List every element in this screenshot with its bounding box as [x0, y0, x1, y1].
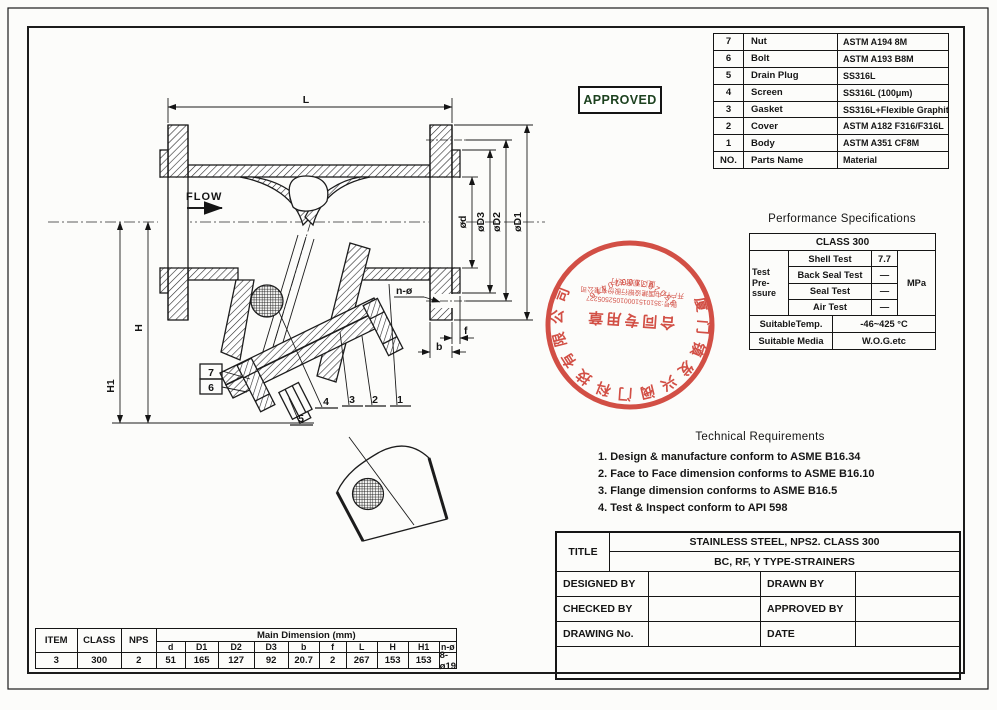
test-value: — [872, 267, 897, 282]
part-name: Screen [744, 85, 838, 101]
requirement-item: 1. Design & manufacture conform to ASME … [598, 449, 875, 466]
part-material: SS316L (100μm) [838, 85, 948, 101]
approved-by-value [856, 597, 959, 621]
callout-6: 6 [208, 382, 214, 394]
test-pressure-line: Pre- [752, 278, 770, 289]
part-no: 4 [714, 85, 744, 101]
requirement-item: 4. Test & Inspect conform to API 598 [598, 500, 875, 517]
dim-label-f: f [464, 325, 468, 337]
col-header: d [157, 642, 186, 653]
part-no: 5 [714, 68, 744, 84]
class-value: 300 [78, 653, 121, 668]
test-row: Air Test— [789, 300, 897, 315]
drawing-no-value [649, 622, 761, 646]
callout-1: 1 [397, 394, 403, 406]
drawing-sheet: L FLOW ød øD3 øD2 øD1 f b n-ø H H1 7 6 5… [0, 0, 997, 710]
pressure-unit: MPa [897, 251, 935, 315]
part-material: ASTM A194 8M [838, 34, 948, 50]
media-row: Suitable MediaW.O.G.etc [750, 333, 935, 349]
part-material: SS316L+Flexible Graphite [838, 102, 948, 118]
part-no: 6 [714, 51, 744, 67]
table-header-row: NO.Parts NameMaterial [714, 151, 948, 168]
test-pressure-label: Test Pre- ssure [750, 251, 789, 315]
dim-value: 165 [186, 653, 219, 668]
dim-label-d: ød [457, 216, 469, 229]
table-row: 7NutASTM A194 8M [714, 34, 948, 50]
performance-title: Performance Specifications [749, 212, 935, 226]
temp-value: -46~425 °C [833, 316, 935, 332]
part-material: ASTM A193 B8M [838, 51, 948, 67]
test-name: Shell Test [789, 251, 872, 266]
table-row: 3GasketSS316L+Flexible Graphite [714, 101, 948, 118]
part-name: Bolt [744, 51, 838, 67]
temp-row: SuitableTemp.-46~425 °C [750, 316, 935, 333]
requirement-item: 3. Flange dimension conforms to ASME B16… [598, 483, 875, 500]
part-material: SS316L [838, 68, 948, 84]
part-no: 2 [714, 118, 744, 134]
col-header: L [347, 642, 378, 653]
test-value: — [872, 284, 897, 299]
item-header: ITEM [36, 629, 77, 653]
callout-7: 7 [208, 367, 214, 379]
part-no: 1 [714, 135, 744, 151]
table-row: 1BodyASTM A351 CF8M [714, 134, 948, 151]
sub-header-row: d D1 D2 D3 b f L H H1 n-ø [157, 642, 456, 653]
dim-value: 153 [378, 653, 409, 668]
header-material: Material [838, 152, 948, 168]
dim-label-D2: øD2 [491, 212, 503, 232]
test-name: Seal Test [789, 284, 872, 299]
col-header: H1 [409, 642, 440, 653]
requirement-item: 2. Face to Face dimension conforms to AS… [598, 466, 875, 483]
part-name: Drain Plug [744, 68, 838, 84]
title-line-1: STAINLESS STEEL, NPS2. CLASS 300 [610, 533, 959, 552]
test-value: 7.7 [872, 251, 897, 266]
item-value: 3 [36, 653, 77, 668]
flow-label: FLOW [186, 191, 222, 203]
designed-by-label: DESIGNED BY [557, 572, 649, 596]
table-row: 5Drain PlugSS316L [714, 67, 948, 84]
callout-3: 3 [349, 394, 355, 406]
part-name: Body [744, 135, 838, 151]
technical-requirements-title: Technical Requirements [565, 430, 955, 444]
test-name: Air Test [789, 300, 872, 315]
title-block-empty-row [557, 647, 959, 678]
dim-label-n: n-ø [396, 285, 413, 297]
callout-4: 4 [323, 396, 329, 408]
callout-5: 5 [298, 413, 304, 425]
test-pressure-line: Test [752, 267, 770, 278]
drawing-no-label: DRAWING No. [557, 622, 649, 646]
title-label: TITLE [557, 533, 610, 571]
dim-value: 51 [157, 653, 186, 668]
main-dimension-table: ITEM3 CLASS300 NPS2 Main Dimension (mm) … [35, 628, 457, 669]
col-header: H [378, 642, 409, 653]
dim-value: 2 [320, 653, 347, 668]
dimension-value-row: 51 165 127 92 20.7 2 267 153 153 8-ø19 [157, 653, 456, 668]
main-dimension-header: Main Dimension (mm) [157, 629, 456, 642]
dim-value: 127 [219, 653, 255, 668]
approved-stamp-label: APPROVED [583, 93, 656, 107]
part-no: 7 [714, 34, 744, 50]
screen-mesh [251, 285, 283, 317]
class-header: CLASS [78, 629, 121, 653]
test-row: Back Seal Test— [789, 267, 897, 283]
title-block: TITLE STAINLESS STEEL, NPS2. CLASS 300 B… [555, 531, 961, 680]
strainer-body [158, 125, 466, 320]
col-header: f [320, 642, 347, 653]
test-pressure-line: ssure [752, 288, 776, 299]
dim-value: 267 [347, 653, 378, 668]
part-no: 3 [714, 102, 744, 118]
part-name: Cover [744, 118, 838, 134]
media-value: W.O.G.etc [833, 333, 935, 349]
header-no: NO. [714, 152, 744, 168]
media-label: Suitable Media [750, 333, 833, 349]
nps-value: 2 [122, 653, 156, 668]
test-value: — [872, 300, 897, 315]
checked-by-label: CHECKED BY [557, 597, 649, 621]
col-header: D3 [255, 642, 289, 653]
approved-stamp: APPROVED [578, 86, 662, 114]
test-row: Shell Test7.7 [789, 251, 897, 267]
designed-by-value [649, 572, 761, 596]
performance-table: CLASS 300 Test Pre- ssure Shell Test7.7 … [749, 233, 936, 350]
temp-label: SuitableTemp. [750, 316, 833, 332]
dim-label-D3: øD3 [475, 212, 487, 232]
dim-label-L: L [303, 94, 310, 106]
date-value [856, 622, 959, 646]
part-material: ASTM A182 F316/F316L [838, 118, 948, 134]
dim-label-H1: H1 [105, 379, 117, 393]
dim-value: 20.7 [289, 653, 320, 668]
dim-value: 153 [409, 653, 440, 668]
col-header: D2 [219, 642, 255, 653]
dim-label-b: b [436, 341, 442, 353]
table-row: 2CoverASTM A182 F316/F316L [714, 117, 948, 134]
callout-2: 2 [372, 394, 378, 406]
nps-header: NPS [122, 629, 156, 653]
col-header: D1 [186, 642, 219, 653]
dim-value: 92 [255, 653, 289, 668]
part-name: Nut [744, 34, 838, 50]
approved-by-label: APPROVED BY [761, 597, 856, 621]
test-name: Back Seal Test [789, 267, 872, 282]
drawn-by-value [856, 572, 959, 596]
dim-label-D1: øD1 [512, 212, 524, 232]
class-row: CLASS 300 [750, 234, 935, 251]
part-material: ASTM A351 CF8M [838, 135, 948, 151]
drawn-by-label: DRAWN BY [761, 572, 856, 596]
screen-detail-view [337, 437, 447, 541]
dim-label-H: H [133, 324, 145, 332]
table-row: 6BoltASTM A193 B8M [714, 50, 948, 67]
date-label: DATE [761, 622, 856, 646]
table-row: 4ScreenSS316L (100μm) [714, 84, 948, 101]
dim-value: 8-ø19 [440, 653, 456, 668]
title-line-2: BC, RF, Y TYPE-STRAINERS [610, 552, 959, 571]
col-header: b [289, 642, 320, 653]
part-name: Gasket [744, 102, 838, 118]
checked-by-value [649, 597, 761, 621]
technical-requirements-list: 1. Design & manufacture conform to ASME … [598, 449, 875, 517]
test-row: Seal Test— [789, 284, 897, 300]
header-name: Parts Name [744, 152, 838, 168]
parts-list-table: 7NutASTM A194 8M 6BoltASTM A193 B8M 5Dra… [713, 33, 949, 169]
